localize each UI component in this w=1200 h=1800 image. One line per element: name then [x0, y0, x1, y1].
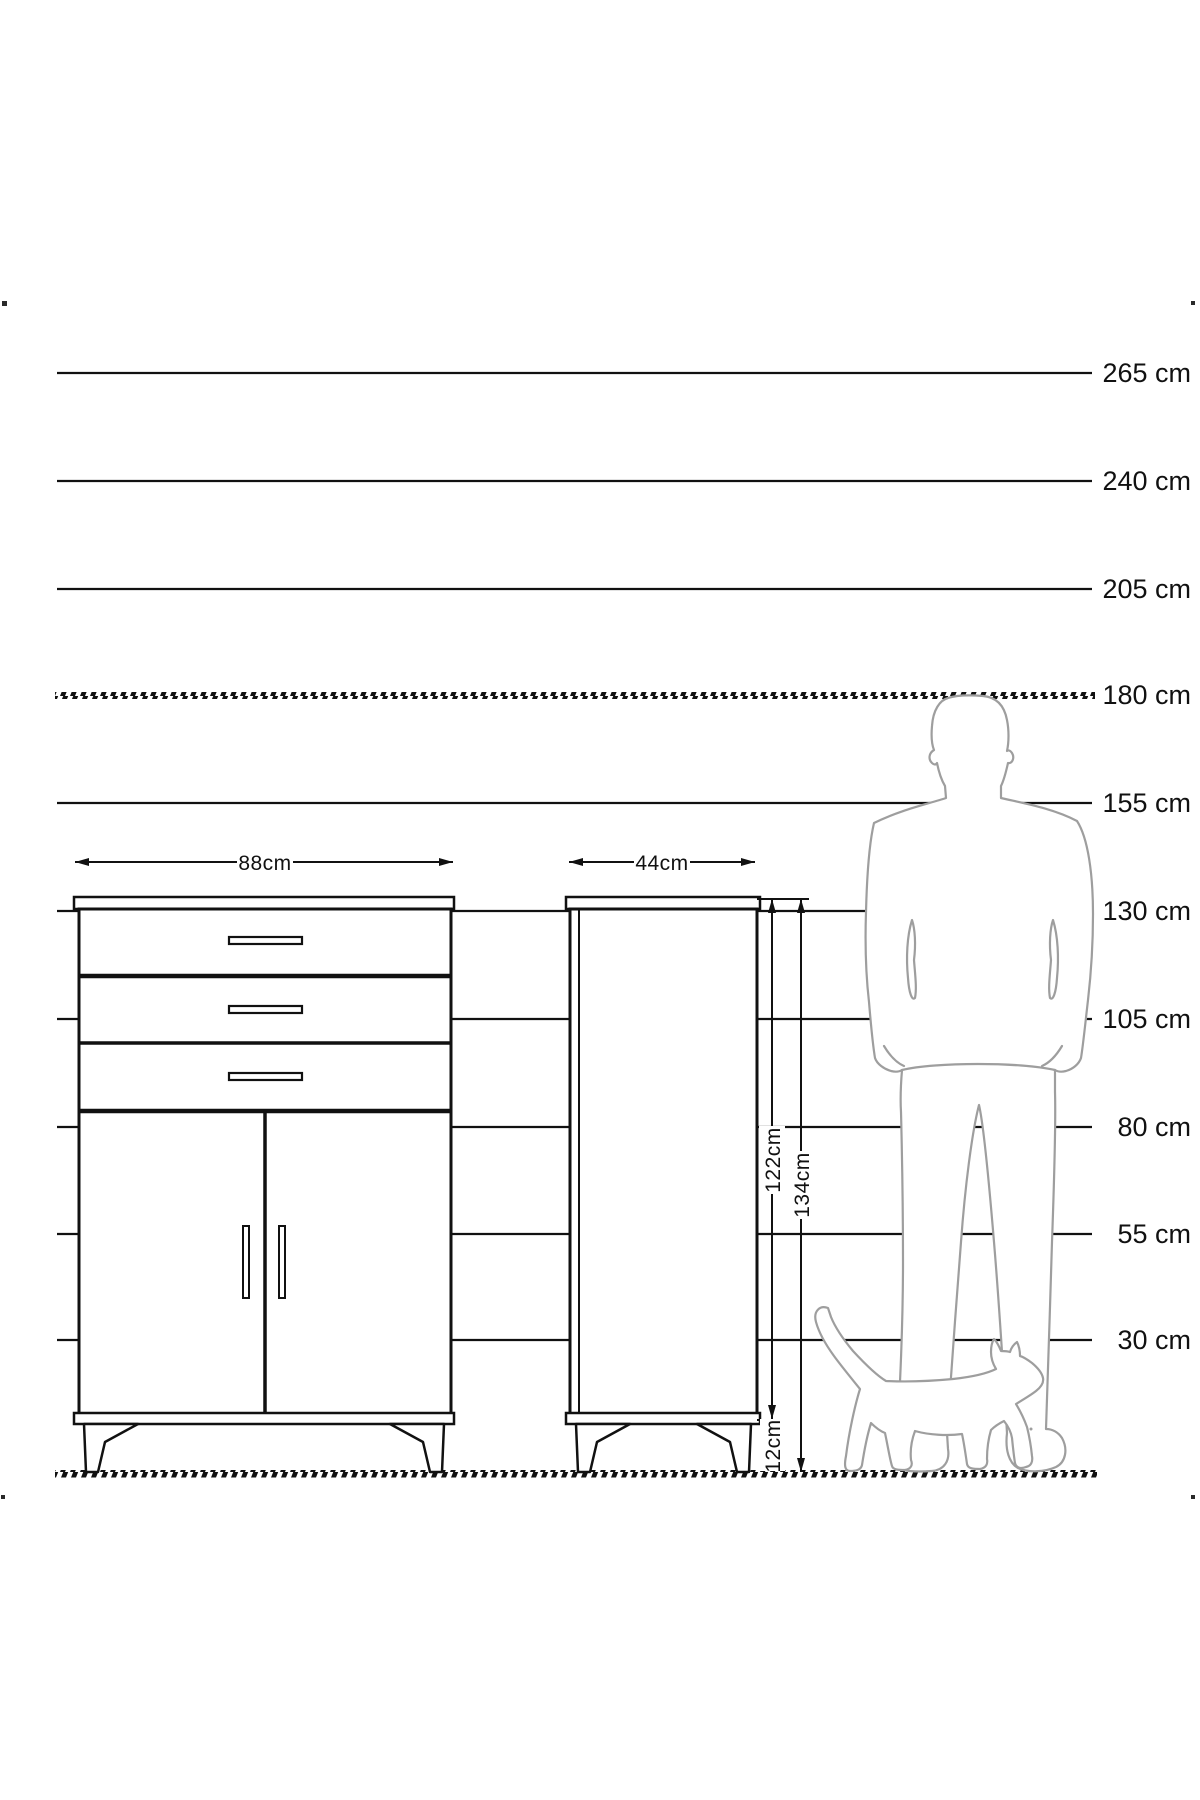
- side-leg-left: [576, 1424, 630, 1472]
- ruler-label-80: 80 cm: [1117, 1112, 1191, 1142]
- front-bottom-panel: [74, 1413, 454, 1424]
- front-leg-right: [390, 1424, 444, 1472]
- drawer-handle-3: [229, 1073, 302, 1080]
- speck: [1, 1495, 5, 1499]
- furniture-dimension-diagram: 265 cm 240 cm 205 cm 180 cm 155 cm 130 c…: [0, 0, 1200, 1800]
- ruler-line-180-hatched: [55, 692, 1095, 699]
- cabinet-front-view: [74, 897, 454, 1472]
- drawer-handle-2: [229, 1006, 302, 1013]
- door-handle-right: [279, 1226, 285, 1298]
- diagram-canvas: 265 cm 240 cm 205 cm 180 cm 155 cm 130 c…: [0, 0, 1200, 1800]
- front-leg-left: [84, 1424, 138, 1472]
- ruler-label-105: 105 cm: [1102, 1004, 1191, 1034]
- ruler-label-205: 205 cm: [1102, 574, 1191, 604]
- ruler-label-240: 240 cm: [1102, 466, 1191, 496]
- door-handle-left: [243, 1226, 249, 1298]
- dim-arrow: [569, 858, 583, 866]
- ruler-label-55: 55 cm: [1117, 1219, 1191, 1249]
- ruler-label-265: 265 cm: [1102, 358, 1191, 388]
- dim-label-total-height: 134cm: [791, 1152, 814, 1218]
- dim-arrow: [439, 858, 453, 866]
- ruler-label-155: 155 cm: [1102, 788, 1191, 818]
- dim-arrow: [768, 899, 776, 913]
- ruler-label-130: 130 cm: [1102, 896, 1191, 926]
- drawer-handle-1: [229, 937, 302, 944]
- cabinet-side-view: [566, 897, 760, 1472]
- side-body: [570, 909, 757, 1415]
- side-top-panel: [566, 897, 760, 909]
- speck: [1191, 1495, 1195, 1499]
- dim-arrow: [768, 1405, 776, 1419]
- man-silhouette: [866, 695, 1093, 1471]
- ruler-label-180: 180 cm: [1102, 680, 1191, 710]
- dim-arrow: [75, 858, 89, 866]
- dim-label-front-width: 88cm: [238, 852, 291, 875]
- speck: [2, 301, 7, 306]
- ground-line-hatched: [55, 1470, 1097, 1478]
- dim-label-leg-height: 12cm: [762, 1419, 785, 1472]
- front-top-panel: [74, 897, 454, 909]
- side-bottom-panel: [566, 1413, 760, 1424]
- dim-label-body-height: 122cm: [762, 1127, 785, 1193]
- dim-arrow: [797, 1458, 805, 1472]
- shoe-speck: [1030, 1428, 1033, 1431]
- height-ruler-labels: 265 cm 240 cm 205 cm 180 cm 155 cm 130 c…: [1102, 358, 1191, 1355]
- man-outline: [866, 695, 1093, 1471]
- side-leg-right: [697, 1424, 751, 1472]
- ruler-label-30: 30 cm: [1117, 1325, 1191, 1355]
- dim-arrow: [741, 858, 755, 866]
- dim-arrow: [797, 899, 805, 913]
- speck: [1191, 301, 1195, 305]
- dim-label-side-width: 44cm: [635, 852, 688, 875]
